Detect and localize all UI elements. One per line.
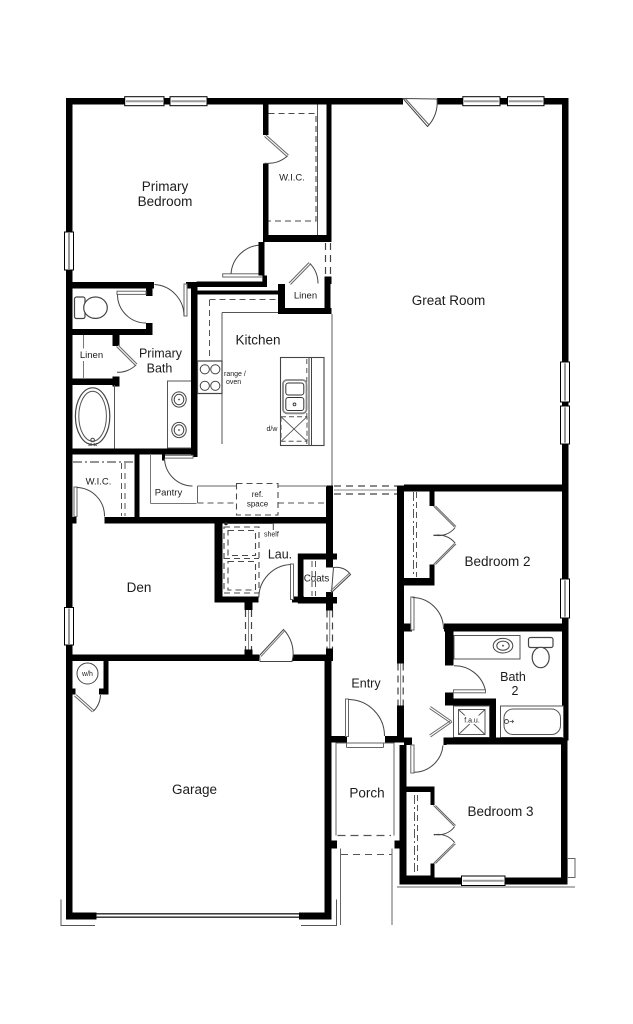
- svg-text:ref.: ref.: [252, 490, 264, 499]
- svg-text:Primary: Primary: [139, 347, 183, 361]
- svg-text:Kitchen: Kitchen: [235, 333, 280, 348]
- svg-text:Primary: Primary: [142, 179, 189, 194]
- svg-text:Linen: Linen: [80, 350, 103, 361]
- svg-text:Pantry: Pantry: [155, 488, 183, 499]
- svg-text:Linen: Linen: [294, 291, 317, 302]
- svg-text:space: space: [247, 500, 269, 509]
- svg-text:Great Room: Great Room: [412, 293, 486, 308]
- svg-text:Den: Den: [127, 580, 152, 595]
- svg-text:oven: oven: [226, 379, 241, 386]
- svg-text:Bath: Bath: [147, 362, 173, 376]
- svg-text:Bedroom 3: Bedroom 3: [467, 804, 533, 819]
- svg-text:Bedroom 2: Bedroom 2: [464, 554, 530, 569]
- svg-text:w/h: w/h: [81, 671, 93, 678]
- svg-text:Entry: Entry: [351, 677, 381, 691]
- svg-text:shelf: shelf: [264, 532, 279, 539]
- svg-text:Garage: Garage: [172, 782, 217, 797]
- svg-text:Bedroom: Bedroom: [138, 194, 193, 209]
- svg-text:d/w: d/w: [267, 426, 279, 433]
- svg-text:Bath: Bath: [500, 670, 526, 684]
- svg-text:W.I.C.: W.I.C.: [86, 477, 112, 488]
- svg-text:Lau.: Lau.: [268, 548, 292, 562]
- svg-text:Coats: Coats: [304, 574, 330, 585]
- svg-text:Porch: Porch: [349, 786, 384, 801]
- svg-text:W.I.C.: W.I.C.: [279, 173, 305, 184]
- svg-text:2: 2: [512, 684, 519, 698]
- svg-text:range /: range /: [224, 371, 246, 378]
- svg-text:f.a.u.: f.a.u.: [464, 718, 480, 725]
